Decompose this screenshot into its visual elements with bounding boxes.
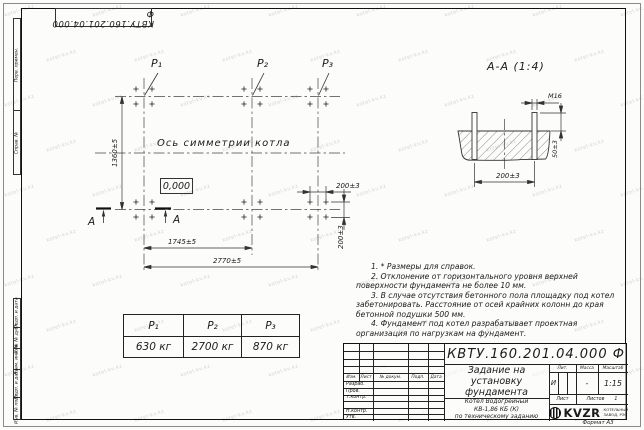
sheet-label: Лист [549,394,576,404]
section-title: А-А (1:4) [487,61,545,72]
section-cut-marks [96,209,171,224]
note-1: 1. * Размеры для справок. [356,262,628,272]
titleblock-col-izm: Изм. [344,373,359,381]
dim-200-plan-horizontal: 200±3 [336,183,360,190]
sheets-cell: Листов 1 [576,394,628,404]
scale-label: Масштаб [598,364,628,372]
format-note: Формат А3 [568,421,628,427]
load-table-header-p1: P₁ [124,315,184,337]
kvzr-logo-caption: КОТЕЛЬНЫЙ ЗАВОД, РЭП [604,408,628,417]
dim-200-section: 200±3 [496,173,520,180]
titleblock-col-podp: Подп. [408,373,428,381]
titleblock-row-razrab: Разраб. [344,381,373,388]
titleblock-col-list: Лист [359,373,373,381]
load-table-value-p1: 630 кг [124,337,184,357]
dim-2770: 2770±5 [213,258,241,265]
titleblock-row-nkontr: Н.контр. [344,408,373,415]
dim-1360: 1360±5 [112,139,119,167]
titleblock-row-prov: Пров. [344,388,373,395]
product-line-1: Котел Водогрейный [455,398,538,405]
load-table-header-p3: P₃ [242,315,299,337]
load-table: P₁ P₂ P₃ 630 кг 2700 кг 870 кг [123,314,300,358]
note-2: 2. Отклонение от горизонтального уровня … [356,272,628,291]
titleblock-designation: КВТУ.160.201.04.000 Ф [444,344,628,364]
zero-elevation-value: 0,000 [163,181,190,192]
lit-label: Лит. [549,364,576,372]
note-4: 4. Фундамент под котел разрабатывает про… [356,319,628,338]
doc-title-line-1: Задание на [465,365,528,376]
load-point-leaders [145,73,330,96]
titleblock-col-ndokum: № докум. [373,373,408,381]
technical-notes: 1. * Размеры для справок. 2. Отклонение … [356,262,628,338]
massa-value: - [576,372,598,394]
dim-1745: 1745±5 [168,239,196,246]
boiler-symmetry-axis-label: Ось симметрии котла [157,139,291,149]
company-logo-cell: KVZR КОТЕЛЬНЫЙ ЗАВОД, РЭП [549,404,628,421]
doc-title-line-3: фундамента [465,387,528,398]
load-point-p1-label: P₁ [151,58,162,69]
titleblock-row-utv: Утв. [344,414,373,421]
kvzr-logo-text: KVZR [564,406,601,420]
zero-elevation-mark: 0,000 [160,178,193,194]
dim-50-section: 50±3 [552,140,559,158]
titleblock-doc-title: Задание на установку фундамента [444,364,549,398]
product-line-3: по техническому заданию [455,413,538,420]
title-block: Изм. Лист № докум. Подп. Дата Разраб. Пр… [343,343,627,420]
titleblock-col-data: Дата [428,373,444,381]
bolt-thread-label: М16 [548,93,562,100]
titleblock-row-tkontr: Т.контр. [344,395,373,402]
massa-label: Масса [576,364,598,372]
load-table-value-p3: 870 кг [242,337,299,357]
scale-value: 1:15 [598,372,628,394]
anchor-bolt-right [532,113,537,160]
kvzr-emblem-icon [549,407,561,419]
sheets-value: 1 [614,397,617,402]
section-view-geometry [458,113,550,161]
load-point-p3-label: P₃ [322,58,333,69]
note-3: 3. В случае отсутствия бетонного пола пл… [356,291,628,320]
section-letter-right: А [173,215,180,226]
sheets-label: Листов [587,397,605,402]
load-table-value-p2: 2700 кг [184,337,242,357]
dim-200-plan-vertical: 200±3 [338,225,345,249]
titleblock-product: Котел Водогрейный КВ-1,86 КБ (К) по техн… [444,398,549,421]
drawing-sheet: kotel-kv.kzkotel-kv.kzkotel-kv.kzkotel-k… [0,0,644,430]
logo-caption-line-2: ЗАВОД, РЭП [604,413,628,418]
load-point-p2-label: P₂ [257,58,268,69]
product-line-2: КВ-1,86 КБ (К) [455,406,538,413]
doc-title-line-2: установку [465,376,528,387]
centerlines [95,78,505,271]
anchor-bolt-left [472,113,477,160]
lit-value: И [549,372,558,394]
load-table-header-p2: P₂ [184,315,242,337]
section-letter-left: А [88,217,95,228]
